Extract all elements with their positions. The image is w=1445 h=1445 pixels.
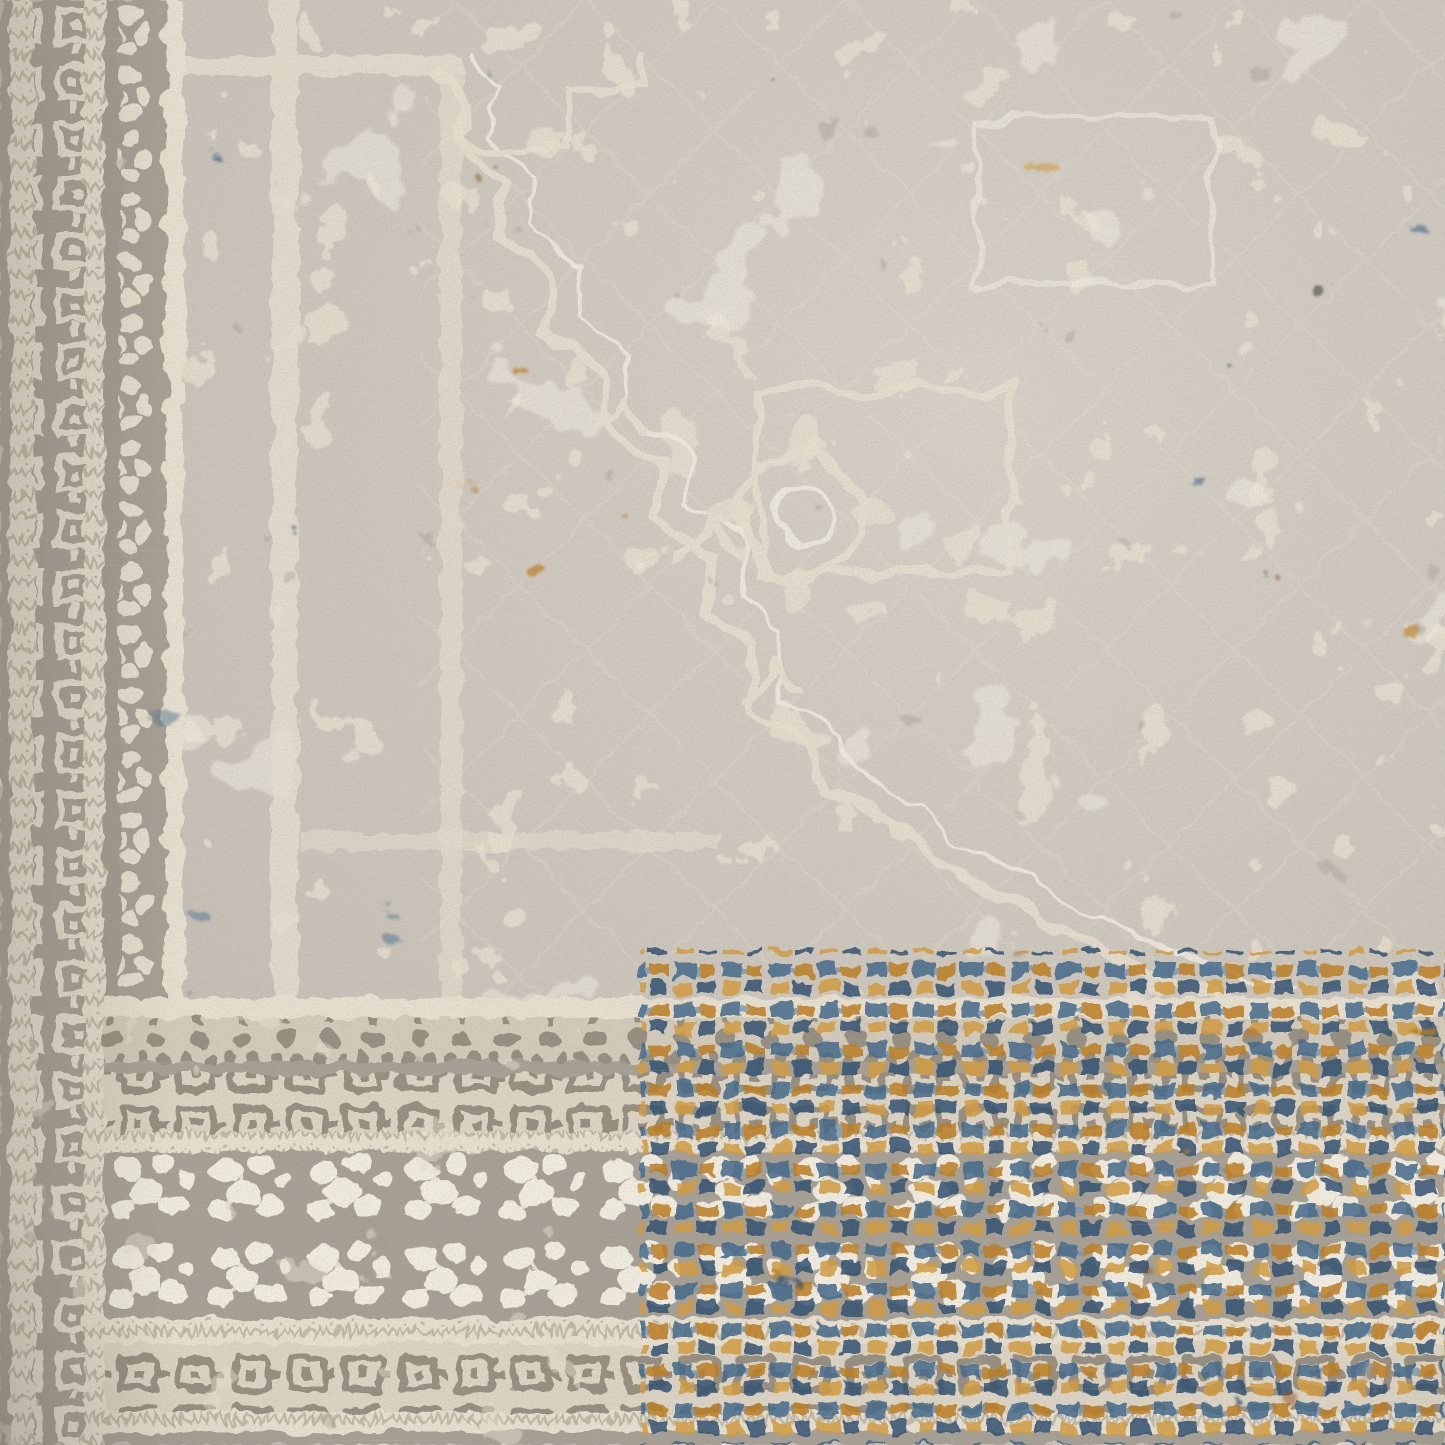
rug-photo: Distressed vintage-style oriental area r… (0, 0, 1445, 1445)
texture-overlays (0, 0, 1445, 1445)
vignette (0, 0, 1445, 1445)
rug-image: Distressed vintage-style oriental area r… (0, 0, 1445, 1445)
